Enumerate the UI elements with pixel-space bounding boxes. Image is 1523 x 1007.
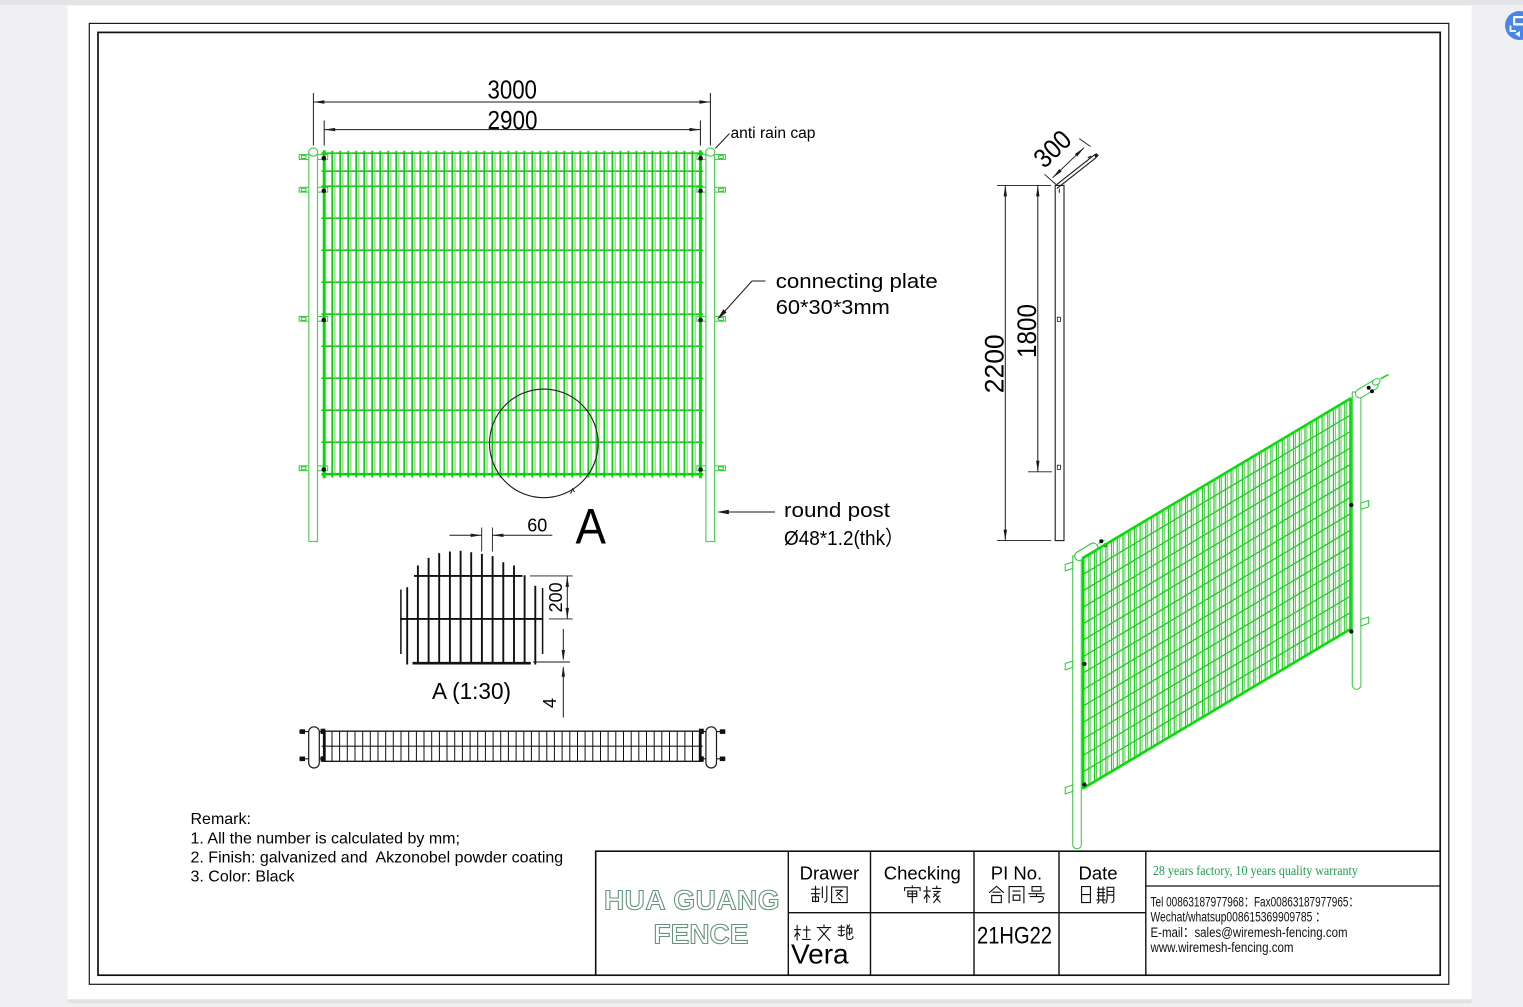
svg-text:4: 4 <box>540 698 560 708</box>
svg-text:200: 200 <box>546 582 566 612</box>
svg-text:3000: 3000 <box>487 74 537 104</box>
svg-text:connecting plate: connecting plate <box>776 270 938 293</box>
svg-text:Date: Date <box>1078 863 1117 884</box>
svg-text:1800: 1800 <box>1012 304 1042 358</box>
svg-text:anti rain cap: anti rain cap <box>731 125 816 142</box>
svg-text:A (1:30): A (1:30) <box>432 678 511 704</box>
svg-text:2200: 2200 <box>979 334 1009 393</box>
svg-text:Vera: Vera <box>791 939 849 970</box>
svg-text:60*30*3mm: 60*30*3mm <box>776 296 890 319</box>
svg-text:2. Finish: galvanized and Akz: 2. Finish: galvanized and Akzonobel powd… <box>191 849 564 866</box>
svg-text:HUA GUANG: HUA GUANG <box>604 885 780 916</box>
svg-text:Wechat/whatsup008615369909785: Wechat/whatsup008615369909785 ： <box>1151 910 1326 925</box>
svg-text:Remark:: Remark: <box>191 811 251 828</box>
svg-text:3. Color: Black: 3. Color: Black <box>191 869 296 886</box>
svg-text:1. All the number is calculate: 1. All the number is calculated by mm; <box>191 830 460 847</box>
svg-text:28 years factory, 10 years qua: 28 years factory, 10 years quality warra… <box>1153 863 1358 878</box>
svg-text:A: A <box>575 499 606 555</box>
svg-text:round post: round post <box>784 499 890 522</box>
svg-text:60: 60 <box>527 516 547 536</box>
svg-text:21HG22: 21HG22 <box>977 923 1052 950</box>
svg-text:2900: 2900 <box>488 105 538 135</box>
svg-text:Ø48*1.2(thk）: Ø48*1.2(thk） <box>784 527 904 550</box>
svg-text:www.wiremesh-fencing.com: www.wiremesh-fencing.com <box>1150 940 1294 955</box>
svg-text:PI No.: PI No. <box>991 863 1042 884</box>
svg-text:E-mail：sales@wiremesh-fencing.: E-mail：sales@wiremesh-fencing.com <box>1151 925 1348 940</box>
svg-text:Drawer: Drawer <box>800 863 860 884</box>
svg-text:Tel 00863187977968：Fax00863187: Tel 00863187977968：Fax00863187977965： <box>1151 895 1359 910</box>
svg-text:Checking: Checking <box>884 863 961 884</box>
svg-text:FENCE: FENCE <box>654 919 749 950</box>
